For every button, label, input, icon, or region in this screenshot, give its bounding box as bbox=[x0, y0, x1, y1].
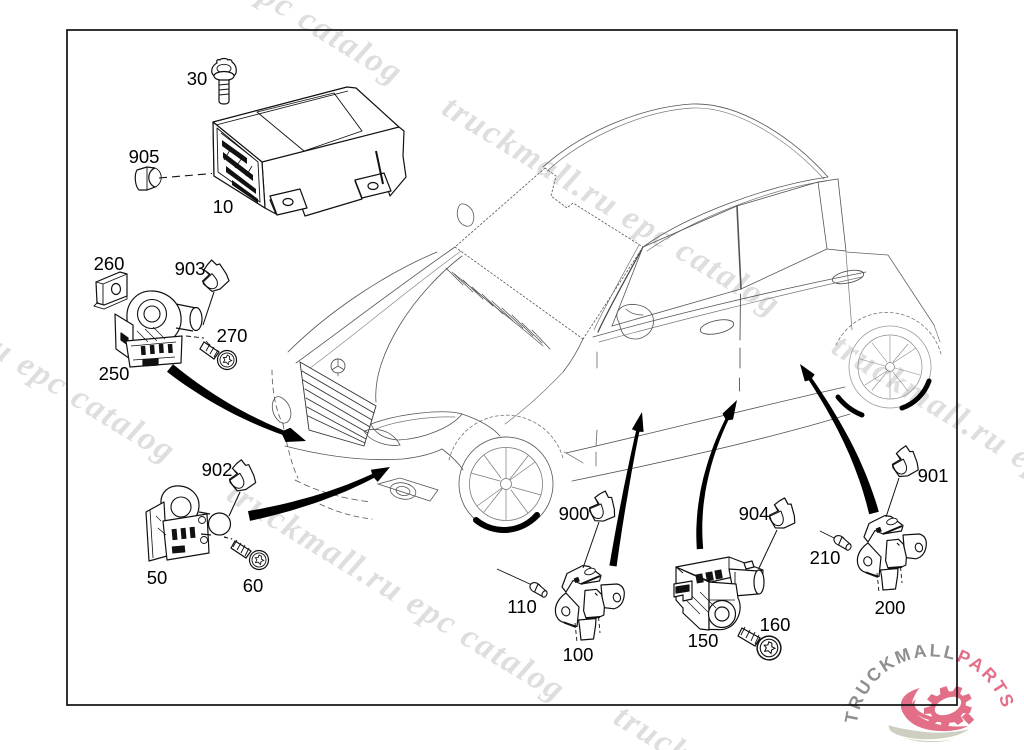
svg-text:50: 50 bbox=[147, 567, 168, 588]
svg-text:902: 902 bbox=[202, 459, 233, 480]
svg-text:210: 210 bbox=[810, 547, 841, 568]
svg-text:901: 901 bbox=[918, 465, 949, 486]
svg-text:60: 60 bbox=[243, 575, 264, 596]
svg-text:10: 10 bbox=[213, 196, 234, 217]
svg-text:150: 150 bbox=[688, 630, 719, 651]
svg-text:200: 200 bbox=[875, 597, 906, 618]
svg-text:904: 904 bbox=[739, 503, 770, 524]
svg-text:30: 30 bbox=[187, 68, 208, 89]
svg-text:100: 100 bbox=[563, 644, 594, 665]
svg-text:905: 905 bbox=[129, 146, 160, 167]
svg-text:110: 110 bbox=[507, 596, 537, 617]
svg-text:160: 160 bbox=[760, 614, 791, 635]
svg-text:903: 903 bbox=[175, 258, 206, 279]
svg-text:900: 900 bbox=[559, 503, 590, 524]
svg-text:260: 260 bbox=[94, 253, 125, 274]
svg-text:250: 250 bbox=[99, 363, 130, 384]
svg-text:270: 270 bbox=[217, 325, 248, 346]
